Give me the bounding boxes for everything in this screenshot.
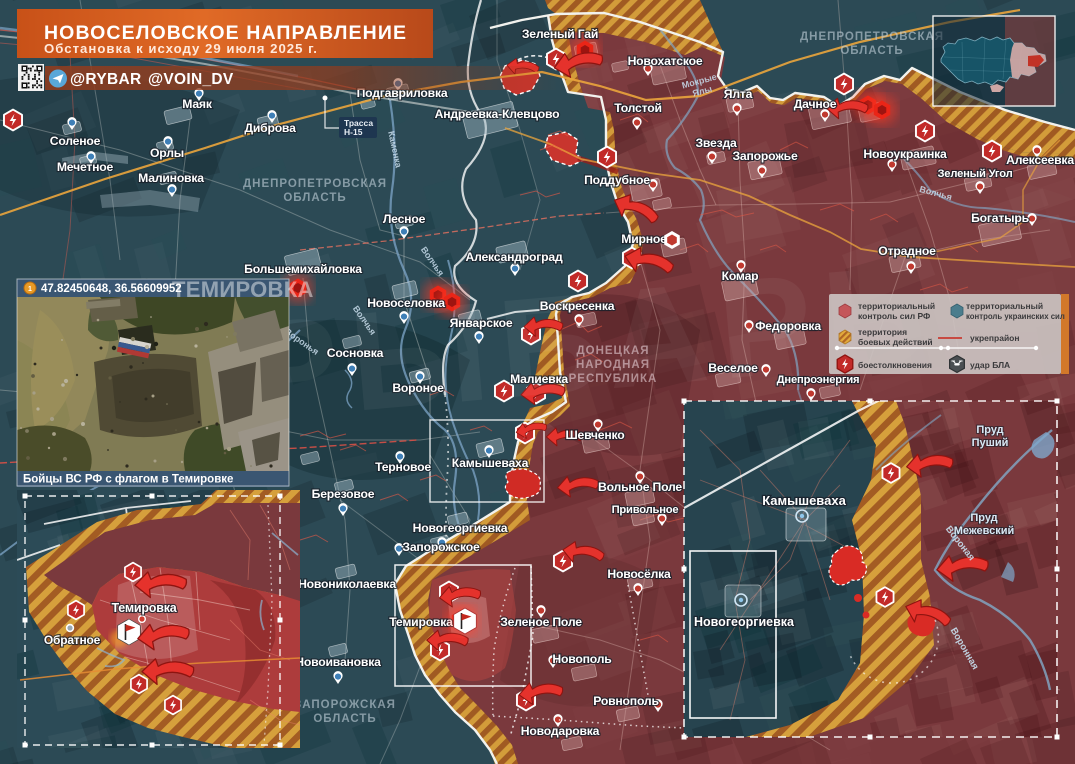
svg-text:@VOIN_DV: @VOIN_DV: [148, 71, 234, 88]
svg-text:Камышеваха: Камышеваха: [452, 456, 529, 470]
svg-text:Александроград: Александроград: [465, 250, 562, 264]
svg-text:Запорожское: Запорожское: [402, 540, 480, 554]
svg-text:контроль украинских сил: контроль украинских сил: [966, 312, 1065, 321]
svg-text:укрепрайон: укрепрайон: [970, 333, 1020, 343]
svg-text:Мечетное: Мечетное: [57, 160, 114, 174]
svg-text:Бойцы ВС РФ с флагом в Темиров: Бойцы ВС РФ с флагом в Темировке: [23, 474, 233, 486]
svg-text:Темировка: Темировка: [111, 601, 177, 615]
svg-text:Новоивановка: Новоивановка: [295, 655, 381, 669]
svg-text:Березовое: Березовое: [312, 487, 375, 501]
svg-text:Маяк: Маяк: [182, 97, 213, 111]
svg-text:Толстой: Толстой: [614, 101, 662, 115]
svg-text:ТЕМИРОВКА: ТЕМИРОВКА: [172, 277, 314, 302]
svg-text:ОБЛАСТЬ: ОБЛАСТЬ: [840, 45, 903, 57]
svg-text:Терновое: Терновое: [375, 460, 431, 474]
svg-text:территориальный: территориальный: [858, 301, 935, 311]
svg-text:Запорожье: Запорожье: [732, 149, 797, 163]
svg-text:Алексеевка: Алексеевка: [1006, 153, 1074, 167]
svg-text:Шевченко: Шевченко: [565, 428, 624, 442]
svg-text:Зеленое Поле: Зеленое Поле: [500, 615, 582, 629]
svg-text:Ровнополь: Ровнополь: [593, 694, 659, 708]
svg-text:Пруд: Пруд: [970, 512, 997, 524]
svg-text:Лесное: Лесное: [383, 212, 426, 226]
svg-text:Н-15: Н-15: [344, 127, 363, 137]
svg-text:Вольное Поле: Вольное Поле: [598, 480, 682, 494]
svg-text:Новогеоргиевка: Новогеоргиевка: [413, 521, 508, 535]
svg-text:Камышеваха: Камышеваха: [762, 493, 846, 508]
svg-text:Новогеоргиевка: Новогеоргиевка: [694, 615, 795, 629]
svg-text:Поддубное: Поддубное: [584, 173, 650, 187]
svg-text:боестолкновения: боестолкновения: [858, 360, 932, 370]
svg-text:Привольное: Привольное: [612, 504, 679, 516]
svg-text:Новохатское: Новохатское: [628, 54, 703, 68]
svg-text:Ялта: Ялта: [724, 87, 753, 101]
svg-text:Малиновка: Малиновка: [138, 171, 204, 185]
svg-text:Зеленый Гай: Зеленый Гай: [522, 27, 598, 41]
svg-text:@RYBAR: @RYBAR: [70, 71, 141, 88]
svg-text:Темировка: Темировка: [389, 615, 453, 629]
svg-text:ДНЕПРОПЕТРОВСКАЯ: ДНЕПРОПЕТРОВСКАЯ: [800, 31, 944, 43]
svg-text:1: 1: [28, 286, 32, 293]
svg-text:Орлы: Орлы: [150, 146, 184, 160]
svg-text:Обстановка к исходу 29 июля 20: Обстановка к исходу 29 июля 2025 г.: [44, 41, 318, 56]
svg-text:Межевский: Межевский: [954, 525, 1015, 537]
svg-text:Диброва: Диброва: [244, 121, 296, 135]
svg-text:Большемихайловка: Большемихайловка: [244, 262, 362, 276]
svg-text:удар БЛА: удар БЛА: [970, 360, 1010, 370]
svg-text:Дачное: Дачное: [794, 97, 837, 111]
svg-text:Пуший: Пуший: [972, 437, 1009, 449]
svg-text:Мирное: Мирное: [621, 232, 667, 246]
svg-text:Андреевка-Клевцово: Андреевка-Клевцово: [435, 107, 560, 121]
svg-text:ОБЛАСТЬ: ОБЛАСТЬ: [313, 713, 376, 725]
svg-text:Зеленый Угол: Зеленый Угол: [937, 168, 1012, 180]
svg-text:Новополь: Новополь: [552, 652, 611, 666]
svg-text:Соленое: Соленое: [50, 134, 101, 148]
svg-text:Богатырь: Богатырь: [971, 211, 1029, 225]
svg-text:Новоукраинка: Новоукраинка: [863, 147, 947, 161]
svg-text:47.82450648, 36.56609952: 47.82450648, 36.56609952: [41, 283, 182, 295]
svg-text:Звезда: Звезда: [695, 136, 737, 150]
svg-text:ОБЛАСТЬ: ОБЛАСТЬ: [283, 192, 346, 204]
svg-text:Новодаровка: Новодаровка: [521, 724, 600, 738]
svg-text:ДНЕПРОПЕТРОВСКАЯ: ДНЕПРОПЕТРОВСКАЯ: [243, 178, 387, 190]
svg-text:ЗАПОРОЖСКАЯ: ЗАПОРОЖСКАЯ: [294, 699, 396, 711]
svg-text:территориальный: территориальный: [966, 301, 1043, 311]
svg-text:Пруд: Пруд: [976, 424, 1003, 436]
svg-text:Новосёлка: Новосёлка: [607, 567, 671, 581]
svg-text:Новониколаевка: Новониколаевка: [298, 577, 396, 591]
svg-text:боевых действий: боевых действий: [858, 337, 933, 347]
svg-text:Обратное: Обратное: [44, 633, 101, 647]
svg-text:территория: территория: [858, 327, 907, 337]
svg-text:контроль сил РФ: контроль сил РФ: [858, 311, 930, 321]
